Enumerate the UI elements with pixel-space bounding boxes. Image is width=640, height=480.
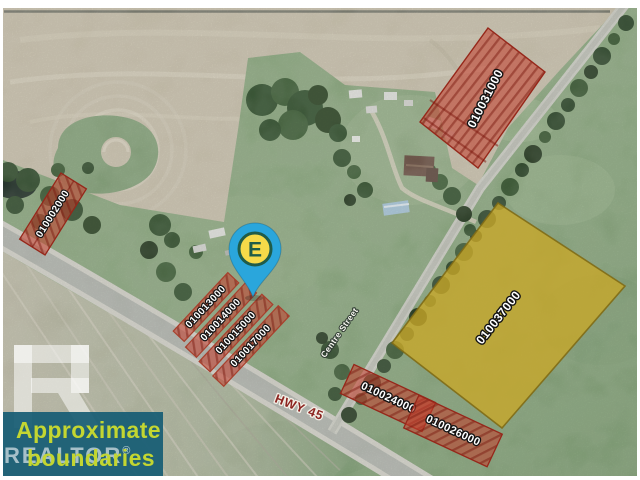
approximate-boundaries-overlay: REALTOR® Approximate boundaries	[2, 412, 163, 478]
aerial-map: 010031000 010002000 010013000 010014000 …	[0, 0, 640, 480]
pin-letter: E	[248, 239, 262, 262]
overlay-line1: Approximate	[16, 417, 161, 443]
listing-photo-map: 010031000 010002000 010013000 010014000 …	[0, 0, 640, 480]
overlay-line2: boundaries	[27, 445, 155, 471]
